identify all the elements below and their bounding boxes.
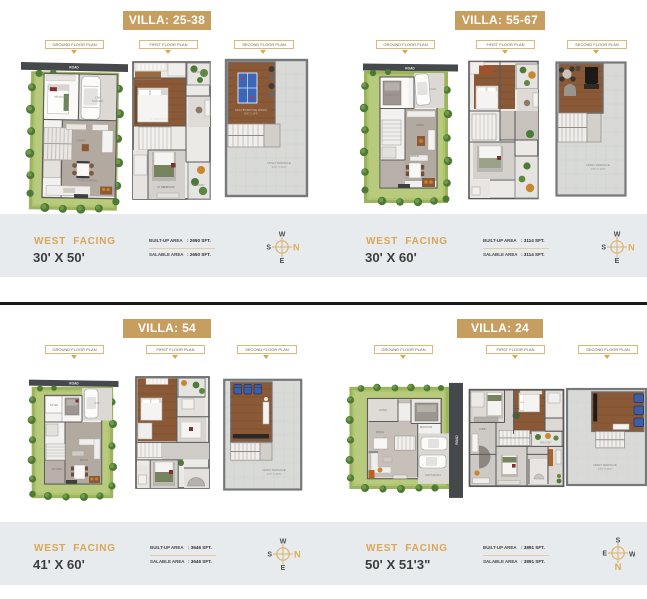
svg-text:CAR: CAR [94,402,99,405]
svg-text:W: W [629,552,635,559]
svg-text:LOBBY: LOBBY [77,138,86,142]
svg-text:LIVING: LIVING [416,124,424,127]
svg-text:MULTIPURPOSE ROOM: MULTIPURPOSE ROOM [235,108,267,112]
svg-text:BALCONY: BALCONY [193,184,205,187]
svg-text:BEDROOM: BEDROOM [420,426,432,429]
svg-text:49'0" X 28'0": 49'0" X 28'0" [598,467,613,471]
svg-text:E: E [602,551,607,558]
svg-text:N: N [294,550,300,561]
svg-text:CAR: CAR [95,95,101,99]
svg-text:W: W [614,232,621,239]
svg-text:N: N [628,243,634,254]
svg-text:BALCONY: BALCONY [540,442,552,445]
svg-text:40'0" X 26'6": 40'0" X 26'6" [267,472,282,476]
svg-text:CAR: CAR [430,88,435,91]
svg-text:LIVING & DINING: LIVING & DINING [77,178,98,182]
svg-text:E: E [281,565,286,571]
svg-text:S: S [266,245,271,252]
svg-text:M. BEDROOM: M. BEDROOM [150,117,167,121]
svg-text:OPEN TERRACE: OPEN TERRACE [593,463,617,467]
svg-text:N: N [293,243,299,254]
svg-text:S: S [616,538,621,545]
svg-text:CAR PARKING: CAR PARKING [425,474,441,477]
svg-text:S: S [267,552,272,559]
svg-text:LIVING: LIVING [379,409,387,412]
svg-text:29'6" X 28'0": 29'6" X 28'0" [591,167,606,171]
svg-text:KITCHEN: KITCHEN [52,468,63,471]
svg-text:M. BEDROOM: M. BEDROOM [157,185,174,189]
svg-text:ROAD: ROAD [455,435,459,445]
svg-text:N: N [615,562,622,570]
svg-text:OPEN TERRACE: OPEN TERRACE [586,163,610,167]
svg-text:DINING: DINING [80,459,89,462]
svg-text:S: S [601,245,606,252]
svg-text:19'6" X 14'6": 19'6" X 14'6" [244,113,258,116]
svg-text:LOBBY: LOBBY [479,428,487,431]
svg-text:OPEN TERRACE: OPEN TERRACE [267,161,291,165]
svg-text:W: W [279,232,286,239]
svg-text:DINING: DINING [411,155,420,158]
svg-text:FOYER: FOYER [50,404,59,407]
svg-text:BEDROOM: BEDROOM [54,95,67,99]
svg-text:BEDROOM: BEDROOM [386,94,399,97]
svg-text:W: W [280,539,287,546]
svg-text:ROAD: ROAD [405,66,415,70]
svg-text:BALCONY: BALCONY [192,71,204,74]
svg-text:OPEN TERRACE: OPEN TERRACE [262,468,286,472]
svg-text:E: E [280,258,285,264]
svg-text:E: E [615,258,620,264]
svg-text:DINING: DINING [376,431,385,434]
svg-text:ROAD: ROAD [69,382,79,386]
svg-text:30'0" X 29'6": 30'0" X 29'6" [272,165,287,169]
svg-text:ROAD: ROAD [69,66,79,70]
svg-text:PARKING: PARKING [92,99,104,103]
